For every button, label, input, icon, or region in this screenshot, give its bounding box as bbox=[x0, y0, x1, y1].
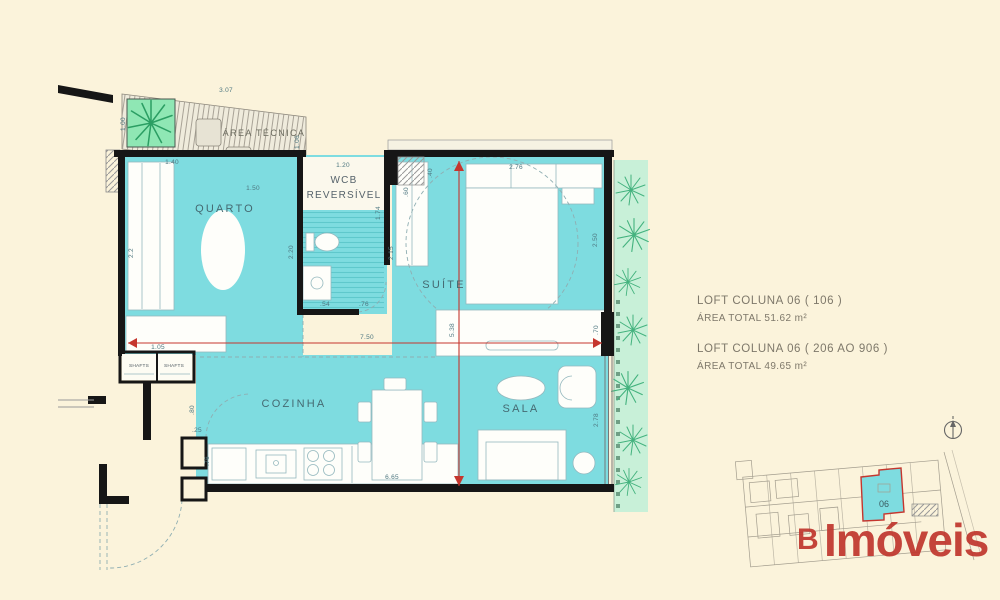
sala-label: SALA bbox=[503, 403, 540, 415]
shafts: SHAFTS SHAFTS bbox=[120, 352, 194, 382]
dim-sala-h: 2.78 bbox=[593, 413, 600, 427]
washbasin-counter bbox=[303, 266, 331, 300]
dim-planter: 1.00 bbox=[120, 117, 127, 131]
dim-area-top: 3.07 bbox=[219, 87, 233, 94]
unit2-title: LOFT COLUNA 06 ( 206 AO 906 ) bbox=[697, 343, 888, 355]
dim-quarto-w2: 1.50 bbox=[246, 185, 260, 192]
console bbox=[436, 310, 606, 356]
desk bbox=[126, 316, 226, 352]
oval-table bbox=[497, 376, 545, 400]
dim-suite-h: 2.50 bbox=[592, 233, 599, 247]
chair bbox=[424, 442, 437, 462]
bed bbox=[466, 188, 558, 304]
dim-total-height: 5.38 bbox=[449, 323, 456, 337]
dim-wcb-b1: .54 bbox=[320, 301, 330, 308]
dim-entry-d: .80 bbox=[189, 405, 196, 415]
garden-strip bbox=[612, 160, 650, 512]
dim-wcb-h2: 1.74 bbox=[375, 206, 382, 220]
dim-quarto-h: 2.2 bbox=[128, 248, 135, 258]
area-tecnica-label: ÁREA TÉCNICA bbox=[223, 128, 306, 138]
nightstand bbox=[562, 188, 594, 204]
side-table bbox=[573, 452, 595, 474]
exterior-ledge bbox=[388, 140, 612, 150]
logo: B Imóveis bbox=[797, 514, 988, 566]
logo-mark: B bbox=[797, 523, 819, 556]
floor-plan-canvas: ÁREA TÉCNICA 3.07 1.06 1.00 bbox=[0, 0, 1000, 600]
wcb-label-2: REVERSÍVEL bbox=[307, 188, 382, 201]
floor-plan-page: ÁREA TÉCNICA 3.07 1.06 1.00 bbox=[0, 0, 1000, 600]
chair bbox=[424, 402, 437, 422]
chair bbox=[358, 402, 371, 422]
dim-closet-w: .60 bbox=[403, 187, 410, 197]
dim-area-side: 1.06 bbox=[294, 135, 301, 149]
sofa bbox=[478, 430, 566, 480]
dim-quarto-w1: 1.40 bbox=[165, 159, 179, 166]
equipment-box bbox=[196, 119, 221, 146]
dim-entry-w: .25 bbox=[192, 427, 202, 434]
dim-pillar: .40 bbox=[427, 168, 434, 178]
logo-name: Imóveis bbox=[824, 514, 988, 566]
shaft-label-1: SHAFTS bbox=[129, 363, 149, 369]
armchair bbox=[558, 366, 596, 408]
dim-entry-h: .76 bbox=[204, 456, 211, 466]
dim-wcb-w: 1.20 bbox=[336, 162, 350, 169]
dim-kitchen-w: 6.65 bbox=[385, 474, 399, 481]
rug bbox=[201, 210, 245, 290]
dining-table bbox=[372, 390, 422, 480]
dim-total-width: 7.50 bbox=[360, 334, 374, 341]
chair bbox=[384, 378, 406, 390]
pillar bbox=[601, 312, 614, 356]
keyplan-unit-label: 06 bbox=[879, 499, 889, 509]
dim-wcb-b2: .76 bbox=[359, 301, 369, 308]
wardrobe bbox=[128, 162, 174, 310]
dim-sill: .70 bbox=[593, 325, 600, 335]
quarto-label: QUARTO bbox=[195, 203, 255, 215]
unit2-area: ÁREA TOTAL 49.65 m² bbox=[697, 359, 807, 372]
toilet-bowl bbox=[315, 233, 339, 251]
dim-suite-w: 2.76 bbox=[509, 164, 523, 171]
unit1-title: LOFT COLUNA 06 ( 106 ) bbox=[697, 295, 842, 307]
dim-closet-h: 2.15 bbox=[388, 246, 395, 260]
suite-label: SUÍTE bbox=[422, 278, 465, 291]
unit1-area: ÁREA TOTAL 51.62 m² bbox=[697, 311, 807, 324]
toilet-tank bbox=[306, 233, 314, 251]
shaft-label-2: SHAFTS bbox=[164, 363, 184, 369]
dim-wcb-h: 2.20 bbox=[288, 245, 295, 259]
dim-hall: 1.05 bbox=[151, 344, 165, 351]
entry-jamb bbox=[182, 438, 206, 500]
chair bbox=[358, 442, 371, 462]
wcb-label-1: WCB bbox=[331, 175, 358, 186]
cozinha-label: COZINHA bbox=[262, 398, 327, 410]
